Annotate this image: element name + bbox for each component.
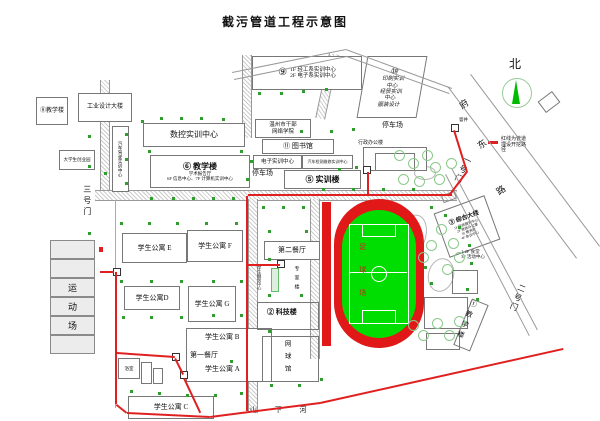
compass-needle-icon xyxy=(512,80,520,104)
tree-dot-icon xyxy=(120,222,123,225)
tree-dot-icon xyxy=(262,206,265,209)
grandstand-row: 动 xyxy=(50,297,95,316)
industrial-design-label: 工业设计大楼 xyxy=(87,104,123,111)
tree-dot-icon xyxy=(268,330,271,333)
compass-north-label: 北 xyxy=(509,58,521,71)
sports-ground-grandstand: 运动场 xyxy=(50,240,95,354)
cnc-center-label: 数控实训中心 xyxy=(170,130,218,139)
campus-map: 截污管道工程示意图 ⑧教学楼 工业设计大楼 大学生创业园 三号门 运动场 汽车驾… xyxy=(0,0,600,421)
road-stadium-west xyxy=(310,199,320,359)
tree-dot-icon xyxy=(424,266,427,269)
auto-repair-label: 汽车检测维修实训中心 xyxy=(308,160,348,165)
tree-dot-icon xyxy=(270,384,273,387)
building-8-label: ⑧教学楼 xyxy=(40,108,64,115)
building-8-teaching: ⑧教学楼 xyxy=(36,97,68,125)
tree-dot-icon xyxy=(305,230,308,233)
tree-dot-icon xyxy=(282,206,285,209)
page-title: 截污管道工程示意图 xyxy=(180,16,390,29)
admin-office-label: 行政办公楼 xyxy=(358,141,383,147)
pipeline-segment xyxy=(248,264,280,266)
tree-dot-icon xyxy=(232,197,235,200)
tree-dot-icon xyxy=(240,280,243,283)
gate-marker xyxy=(99,247,103,252)
tree-dot-icon xyxy=(141,120,144,123)
building-cadre-school: 温州市干部 网络学院 xyxy=(255,119,311,138)
tree-dot-icon xyxy=(330,130,333,133)
tree-dot-icon xyxy=(130,390,133,393)
soccer-field-label: 足球场 xyxy=(358,243,366,312)
pipeline-segment xyxy=(246,264,248,411)
tree-dot-icon xyxy=(470,262,473,265)
pitch-penalty-bottom xyxy=(362,310,396,323)
building-11-library: ⑪ 图书馆 xyxy=(262,139,334,154)
library-label: ⑪ 图书馆 xyxy=(283,142,313,150)
tree-circle-icon xyxy=(454,252,465,263)
tree-circle-icon xyxy=(444,330,455,341)
tree-dot-icon xyxy=(300,130,303,133)
tree-dot-icon xyxy=(352,128,355,131)
tree-circle-icon xyxy=(436,224,447,235)
building-apartment-f: 学生公寓 F xyxy=(187,230,243,262)
tree-dot-icon xyxy=(298,384,301,387)
tree-circle-icon xyxy=(394,150,405,161)
tree-dot-icon xyxy=(212,197,215,200)
small-building-outline xyxy=(141,362,152,384)
service-center-label: 学生服务中心 xyxy=(257,266,261,302)
tree-dot-icon xyxy=(212,280,215,283)
tree-dot-icon xyxy=(355,166,358,169)
tree-dot-icon xyxy=(258,92,261,95)
building-auto-repair-center: 汽车检测维修实训中心 xyxy=(302,155,353,169)
tree-dot-icon xyxy=(88,165,91,168)
building-6-line2: 6F 信息中心、7F 计算机实训中心 xyxy=(167,176,233,181)
tree-dot-icon xyxy=(268,258,271,261)
tree-circle-icon xyxy=(408,320,419,331)
tree-dot-icon xyxy=(250,160,253,163)
tree-dot-icon xyxy=(430,206,433,209)
fudong-road-char-3: 路 xyxy=(495,184,508,197)
tree-dot-icon xyxy=(150,316,153,319)
pitch-penalty-top xyxy=(362,224,396,237)
tree-dot-icon xyxy=(268,230,271,233)
grandstand-row xyxy=(50,335,95,354)
cadre-line2: 网络学院 xyxy=(272,129,294,135)
tree-dot-icon xyxy=(150,280,153,283)
building-5-label: ⑤ 实训楼 xyxy=(306,175,340,184)
legend-line3: 径 xyxy=(501,148,526,154)
tree-circle-icon xyxy=(398,174,409,185)
pitch-center-circle xyxy=(371,266,387,282)
tree-dot-icon xyxy=(88,232,91,235)
building-6-title: ⑥ 教学楼 xyxy=(183,162,217,171)
building-apartment-e: 学生公寓 E xyxy=(122,233,187,263)
tree-dot-icon xyxy=(160,117,163,120)
apartment-b-label: 学生公寓 B xyxy=(205,334,239,342)
small-green-structure xyxy=(271,268,279,292)
building-electronics-center: 电子实训中心 xyxy=(253,155,302,169)
tree-dot-icon xyxy=(125,133,128,136)
building-9-line2: 2F 电子系实训中心 xyxy=(290,73,336,79)
running-track-straight xyxy=(322,202,331,346)
expert-building-label: 专家楼 xyxy=(293,266,299,293)
parking-west-label: 停车场 xyxy=(252,170,273,178)
tennis-hall-label: 网球馆 xyxy=(283,340,290,378)
manhole-label: 窨井 xyxy=(459,118,468,123)
pipeline-segment xyxy=(115,272,117,404)
tree-dot-icon xyxy=(300,294,303,297)
tree-dot-icon xyxy=(125,158,128,161)
building-2-label: ② 科技楼 xyxy=(267,309,297,317)
apartment-a-label: 学生公寓 A xyxy=(205,366,240,374)
tree-dot-icon xyxy=(268,294,271,297)
grandstand-row: 运 xyxy=(50,278,95,297)
tree-dot-icon xyxy=(120,280,123,283)
tree-dot-icon xyxy=(172,197,175,200)
tree-dot-icon xyxy=(212,314,215,317)
tree-dot-icon xyxy=(476,298,479,301)
building-outline xyxy=(452,270,478,294)
tree-circle-icon xyxy=(430,162,441,173)
tree-dot-icon xyxy=(430,282,433,285)
tree-dot-icon xyxy=(246,178,249,181)
apartment-d-label: 学生公寓D xyxy=(135,294,168,302)
apartment-e-label: 学生公寓 E xyxy=(137,244,171,252)
tree-dot-icon xyxy=(325,88,328,91)
building-industrial-design: 工业设计大楼 xyxy=(78,93,132,122)
pipeline-segment xyxy=(367,172,369,196)
tree-dot-icon xyxy=(338,168,341,171)
building-outline xyxy=(538,91,561,113)
tree-dot-icon xyxy=(322,188,325,191)
building-cnc-center: 数控实训中心 xyxy=(143,123,245,147)
canteen2-label: 第二餐厅 xyxy=(278,246,306,254)
tree-dot-icon xyxy=(205,222,208,225)
tree-dot-icon xyxy=(458,226,461,229)
tree-dot-icon xyxy=(148,150,151,153)
tree-dot-icon xyxy=(466,288,469,291)
tree-dot-icon xyxy=(88,135,91,138)
apartment-g-label: 学生公寓 G xyxy=(195,300,230,308)
grandstand-row: 场 xyxy=(50,316,95,335)
tree-dot-icon xyxy=(180,280,183,283)
tree-dot-icon xyxy=(200,117,203,120)
tree-circle-icon xyxy=(434,174,445,185)
parking-east-label: 停车场 xyxy=(382,122,403,130)
pipeline-segment xyxy=(100,271,114,273)
building-apartment-d: 学生公寓D xyxy=(124,286,180,310)
tree-dot-icon xyxy=(222,118,225,121)
building-10-line: 服装设计 xyxy=(377,102,400,108)
bathhouse-label: 浴室 xyxy=(125,366,134,371)
canteen1-label: 第一餐厅 xyxy=(190,352,218,360)
startup-park-label: 大学生创业园 xyxy=(64,157,91,162)
tree-dot-icon xyxy=(240,392,243,395)
tree-circle-icon xyxy=(442,264,453,275)
pipeline-segment xyxy=(116,404,127,414)
tree-dot-icon xyxy=(468,244,471,247)
tree-dot-icon xyxy=(302,206,305,209)
tree-dot-icon xyxy=(158,392,161,395)
pipeline-segment xyxy=(248,194,452,196)
pipeline-segment xyxy=(320,348,563,404)
tree-dot-icon xyxy=(186,394,189,397)
building-6-teaching: ⑥ 教学楼 学术报告厅 6F 信息中心、7F 计算机实训中心 xyxy=(150,155,250,188)
tree-dot-icon xyxy=(180,117,183,120)
tree-circle-icon xyxy=(418,252,429,263)
tree-dot-icon xyxy=(214,394,217,397)
tree-dot-icon xyxy=(176,222,179,225)
tree-circle-icon xyxy=(454,316,465,327)
tree-dot-icon xyxy=(235,222,238,225)
tree-circle-icon xyxy=(446,158,457,169)
tree-dot-icon xyxy=(444,214,447,217)
tree-dot-icon xyxy=(122,316,125,319)
tree-dot-icon xyxy=(150,197,153,200)
grandstand-row xyxy=(50,259,95,278)
grandstand-row xyxy=(50,240,95,259)
tree-circle-icon xyxy=(418,330,429,341)
pipeline-segment xyxy=(246,196,248,264)
tree-dot-icon xyxy=(230,360,233,363)
small-building-outline xyxy=(153,368,163,384)
tree-dot-icon xyxy=(148,222,151,225)
tree-dot-icon xyxy=(104,172,107,175)
tree-dot-icon xyxy=(240,314,243,317)
tree-dot-icon xyxy=(280,92,283,95)
tree-dot-icon xyxy=(382,188,385,191)
building-9-training: ⑨ 1F 轻工系实训中心 2F 电子系实训中心 xyxy=(252,56,362,90)
tree-dot-icon xyxy=(192,197,195,200)
tree-dot-icon xyxy=(320,378,323,381)
tree-dot-icon xyxy=(240,150,243,153)
tree-dot-icon xyxy=(180,316,183,319)
tree-circle-icon xyxy=(414,176,425,187)
driving-training-label: 汽车驾驶实训中心 xyxy=(118,141,123,177)
tree-circle-icon xyxy=(426,240,437,251)
tree-dot-icon xyxy=(302,90,305,93)
building-5-training: ⑤ 实训楼 xyxy=(284,170,361,189)
tree-circle-icon xyxy=(432,318,443,329)
building-canteen2: 第二餐厅 xyxy=(264,241,320,260)
tree-circle-icon xyxy=(448,238,459,249)
tree-dot-icon xyxy=(352,188,355,191)
electronics-center-label: 电子实训中心 xyxy=(261,159,294,165)
apartment-c-label: 学生公寓 C xyxy=(154,403,188,411)
building-tennis-outline xyxy=(262,336,319,382)
apartment-f-label: 学生公寓 F xyxy=(198,242,232,250)
tree-circle-icon xyxy=(408,158,419,169)
tree-dot-icon xyxy=(412,188,415,191)
tree-circle-icon xyxy=(422,150,433,161)
building-bathhouse: 浴室 xyxy=(118,358,140,379)
gate-3-label: 三号门 xyxy=(82,185,91,218)
tree-dot-icon xyxy=(125,182,128,185)
